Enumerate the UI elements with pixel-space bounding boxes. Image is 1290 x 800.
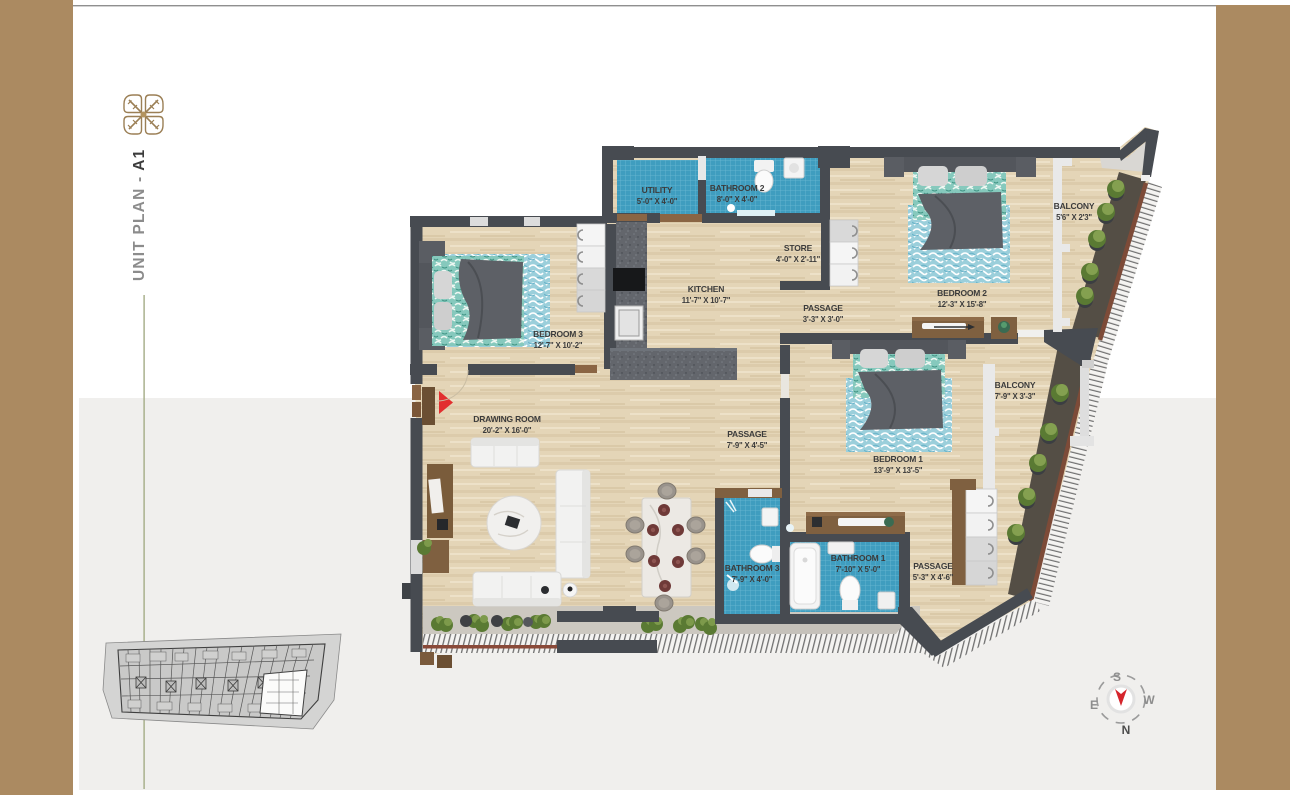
svg-text:PASSAGE: PASSAGE (803, 303, 843, 313)
svg-text:4'-0" X 2'-11": 4'-0" X 2'-11" (776, 255, 821, 264)
svg-text:KITCHEN: KITCHEN (688, 284, 724, 294)
svg-text:11'-7" X 10'-7": 11'-7" X 10'-7" (682, 296, 731, 305)
svg-text:12'-3" X 15'-8": 12'-3" X 15'-8" (938, 300, 987, 309)
svg-text:5'-0" X 4'-0": 5'-0" X 4'-0" (637, 197, 678, 206)
svg-text:7'-10" X 5'-0": 7'-10" X 5'-0" (836, 565, 881, 574)
svg-text:7'-9" X 3'-3": 7'-9" X 3'-3" (995, 392, 1036, 401)
svg-text:12'-7" X 10'-2": 12'-7" X 10'-2" (534, 341, 583, 350)
svg-text:3'-3" X 3'-0": 3'-3" X 3'-0" (803, 315, 844, 324)
svg-text:7'-9" X 4'-0": 7'-9" X 4'-0" (732, 575, 773, 584)
svg-text:13'-9" X 13'-5": 13'-9" X 13'-5" (874, 466, 923, 475)
svg-text:5'-3" X 4'-6": 5'-3" X 4'-6" (913, 573, 954, 582)
svg-text:UNIT PLAN - A1: UNIT PLAN - A1 (131, 149, 148, 281)
svg-text:STORE: STORE (784, 243, 813, 253)
svg-text:BALCONY: BALCONY (995, 380, 1036, 390)
svg-text:E: E (1090, 698, 1098, 712)
svg-text:PASSAGE: PASSAGE (727, 429, 767, 439)
svg-text:BATHROOM 2: BATHROOM 2 (710, 183, 765, 193)
svg-text:20'-2" X 16'-0": 20'-2" X 16'-0" (483, 426, 532, 435)
svg-text:W: W (1143, 693, 1155, 707)
svg-text:UTILITY: UTILITY (642, 185, 673, 195)
svg-text:S: S (1113, 670, 1121, 684)
svg-text:5'6" X 2'3": 5'6" X 2'3" (1056, 213, 1092, 222)
svg-text:PASSAGE: PASSAGE (913, 561, 953, 571)
svg-text:7'-9" X 4'-5": 7'-9" X 4'-5" (727, 441, 768, 450)
svg-text:BEDROOM 1: BEDROOM 1 (873, 454, 923, 464)
svg-text:BEDROOM 2: BEDROOM 2 (937, 288, 987, 298)
svg-text:BALCONY: BALCONY (1054, 201, 1095, 211)
svg-text:BATHROOM 1: BATHROOM 1 (831, 553, 886, 563)
svg-text:N: N (1122, 723, 1131, 737)
svg-text:8'-0" X 4'-0": 8'-0" X 4'-0" (717, 195, 758, 204)
svg-text:BATHROOM 3: BATHROOM 3 (725, 563, 780, 573)
svg-text:BEDROOM 3: BEDROOM 3 (533, 329, 583, 339)
svg-text:DRAWING ROOM: DRAWING ROOM (473, 414, 541, 424)
